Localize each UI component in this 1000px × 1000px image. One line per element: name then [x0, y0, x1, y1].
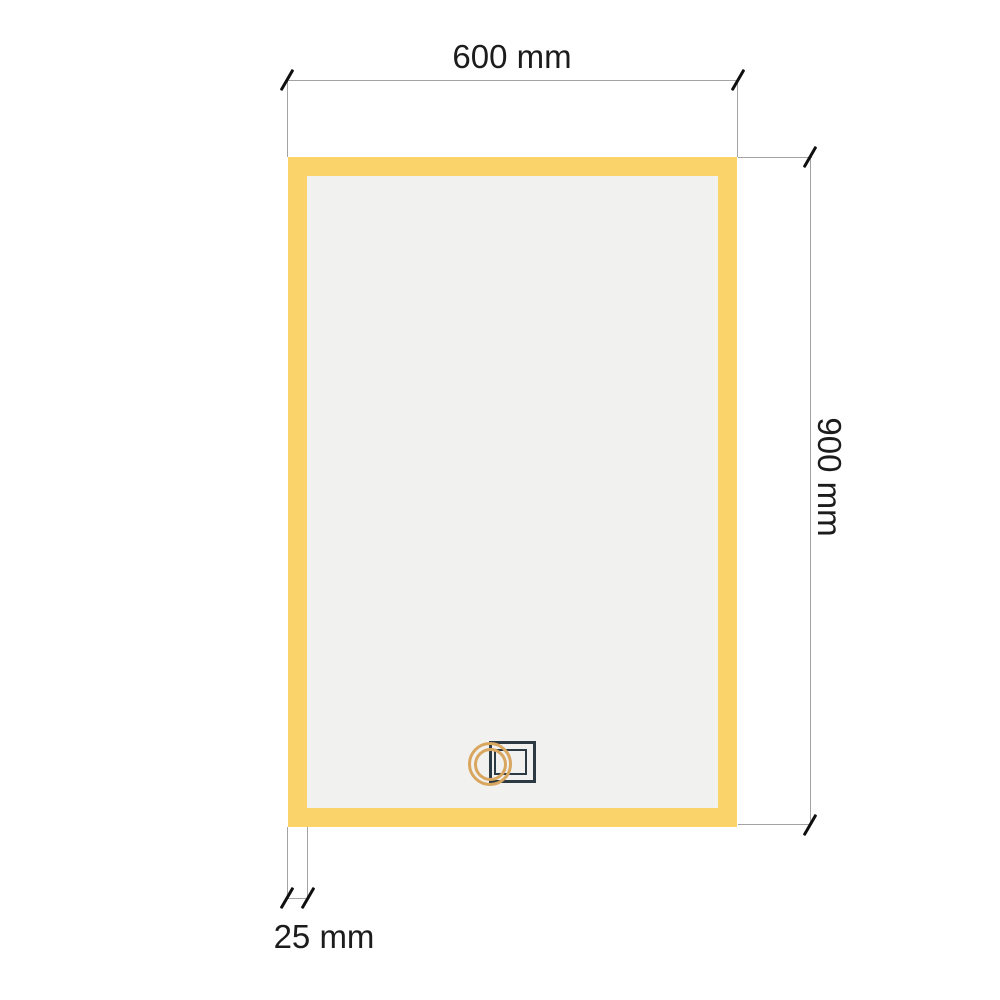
width-extension-line-right [737, 80, 738, 157]
height-dimension-label: 900 mm [809, 417, 849, 536]
frame-extension-line-outer [287, 827, 288, 899]
sensor-inner-ring-icon [474, 748, 507, 781]
height-extension-line-top [738, 157, 812, 158]
width-dimension-label: 600 mm [452, 37, 571, 77]
mirror-surface [307, 176, 718, 808]
mirror-frame [288, 157, 737, 827]
width-dimension-line [287, 80, 738, 81]
height-dimension-line [810, 157, 811, 826]
width-extension-line-left [287, 80, 288, 157]
mirror-technical-drawing: 600 mm 900 mm 25 mm [0, 0, 1000, 1000]
frame-extension-line-inner [307, 827, 308, 899]
frame-thickness-dimension-label: 25 mm [274, 917, 375, 957]
height-extension-line-bottom [738, 824, 812, 825]
touch-sensor-icon [466, 738, 540, 790]
